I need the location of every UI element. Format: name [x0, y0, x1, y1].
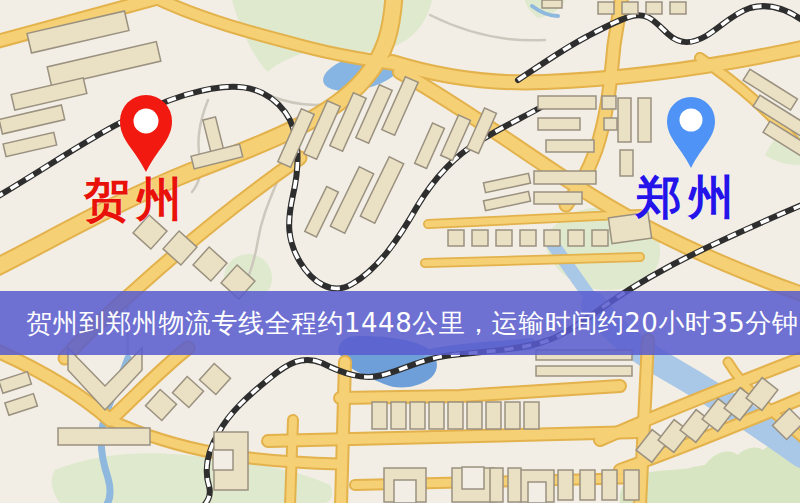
map-image: [0, 0, 800, 503]
destination-pin-hole: [680, 109, 703, 132]
route-info-banner: 贺州到郑州物流专线全程约1448公里，运输时间约20小时35分钟.: [0, 291, 800, 355]
origin-city-label: 贺州: [84, 176, 188, 222]
destination-city-label: 郑州: [636, 174, 740, 220]
origin-pin-hole: [134, 109, 159, 134]
map-screenshot: 贺州 郑州 贺州到郑州物流专线全程约1448公里，运输时间约20小时35分钟.: [0, 0, 800, 503]
route-info-text: 贺州到郑州物流专线全程约1448公里，运输时间约20小时35分钟.: [0, 306, 800, 341]
